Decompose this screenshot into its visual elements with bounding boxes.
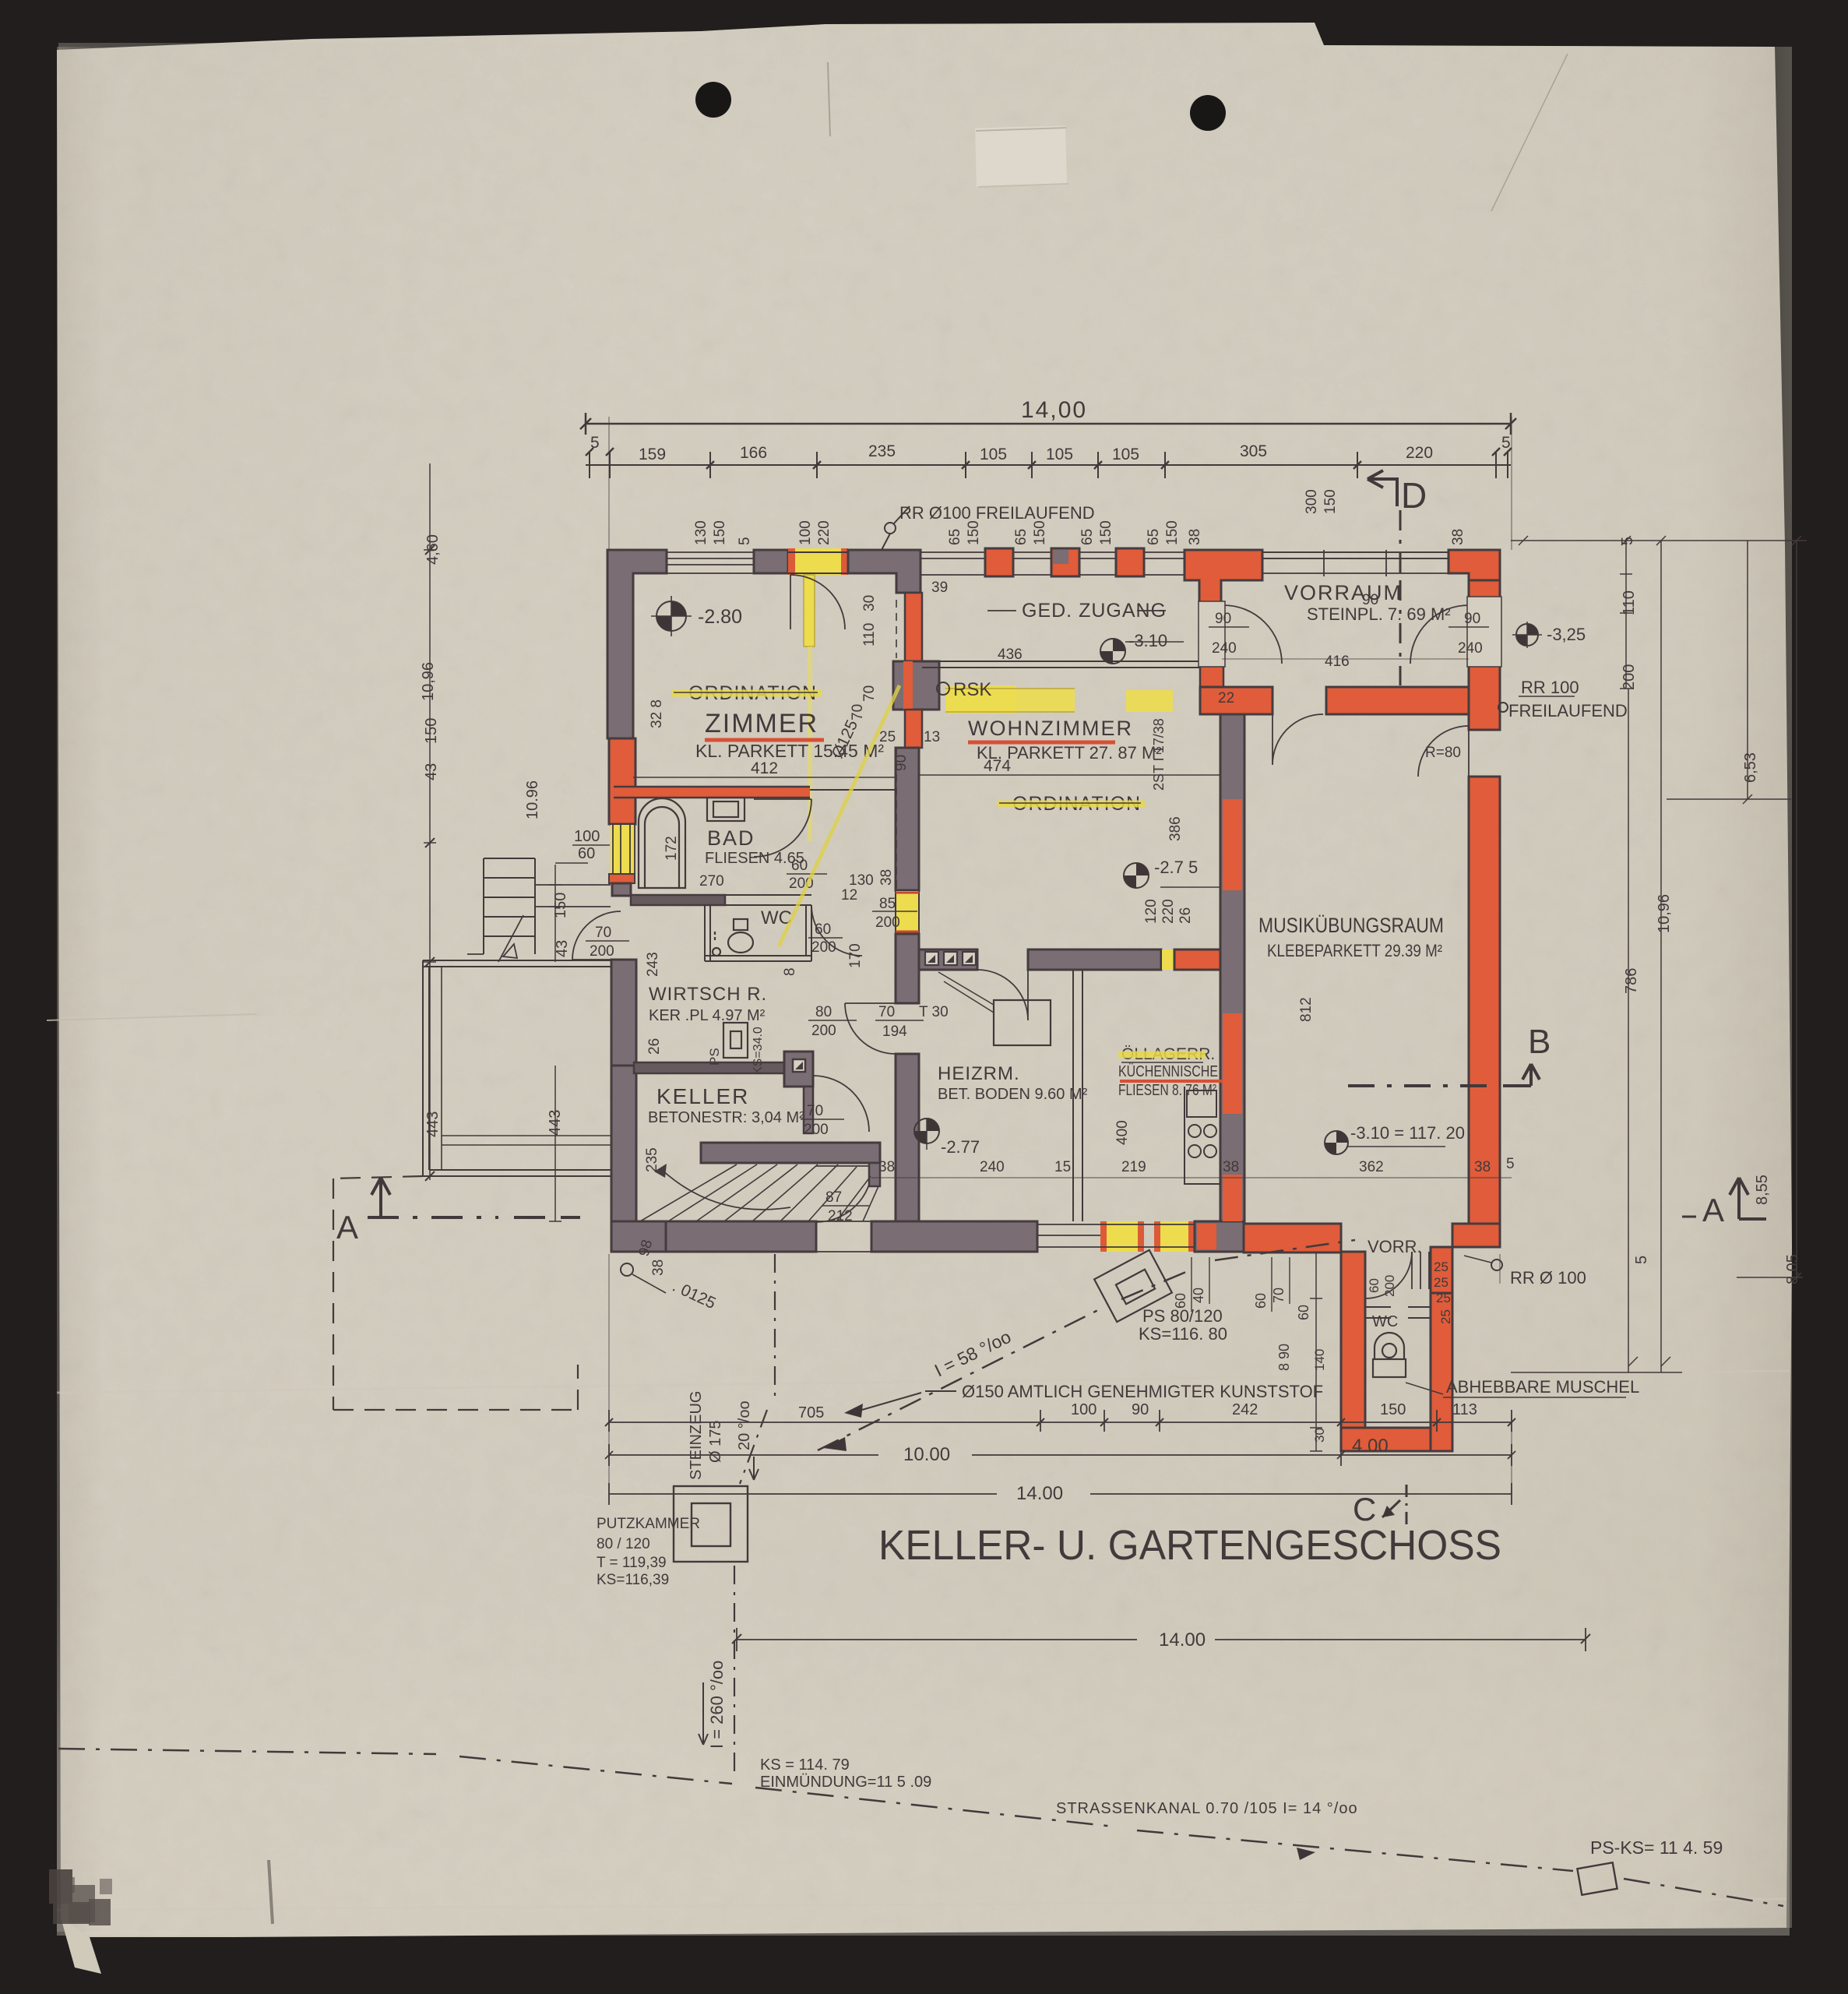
svg-text:2ST I 17/38: 2ST I 17/38 [1151,718,1167,791]
svg-text:70: 70 [850,704,866,720]
svg-text:RR 100: RR 100 [1521,678,1579,697]
svg-text:BET. BODEN 9.60 M²: BET. BODEN 9.60 M² [938,1086,1088,1103]
svg-text:12: 12 [841,887,857,904]
svg-text:32 8: 32 8 [649,699,665,728]
svg-text:100: 100 [574,828,600,845]
svg-text:90: 90 [1132,1401,1149,1418]
svg-text:166: 166 [740,444,767,462]
svg-text:KS=116,39: KS=116,39 [597,1572,669,1588]
svg-text:90: 90 [893,755,910,771]
svg-text:5: 5 [1633,1256,1650,1264]
svg-text:PS: PS [707,1048,722,1066]
svg-text:38: 38 [878,1159,895,1175]
svg-text:Ø150 AMTLICH GENEHMIGTER KUNST: Ø150 AMTLICH GENEHMIGTER KUNSTSTOF [962,1382,1323,1401]
svg-text:60: 60 [1367,1278,1382,1293]
svg-text:200: 200 [590,943,614,960]
svg-text:30: 30 [1312,1428,1327,1443]
svg-text:200: 200 [804,1122,829,1138]
svg-text:172: 172 [664,836,680,861]
svg-text:220: 220 [816,520,832,545]
svg-text:25: 25 [1434,1259,1448,1274]
svg-text:BETONESTR: 3,04 M²: BETONESTR: 3,04 M² [648,1109,804,1126]
svg-text:386: 386 [1167,816,1184,841]
svg-text:KÜCHENNISCHE: KÜCHENNISCHE [1118,1063,1218,1080]
svg-text:240: 240 [980,1159,1005,1175]
svg-text:26: 26 [1177,907,1194,924]
svg-text:80 / 120: 80 / 120 [597,1536,650,1552]
svg-text:235: 235 [644,1147,660,1172]
svg-text:A: A [336,1209,358,1245]
svg-text:105: 105 [1112,446,1139,463]
svg-text:38: 38 [1187,529,1203,545]
svg-text:HEIZRM.: HEIZRM. [938,1063,1020,1084]
svg-text:150: 150 [1032,520,1048,545]
svg-text:110: 110 [1621,590,1638,615]
svg-text:-2.80: -2.80 [698,606,742,628]
svg-text:150: 150 [1098,520,1114,545]
svg-text:PUTZKAMMER: PUTZKAMMER [597,1516,700,1532]
svg-text:170: 170 [847,943,864,968]
svg-text:240: 240 [1458,640,1483,657]
svg-text:T = 119,39: T = 119,39 [597,1555,667,1571]
svg-text:-3,25: -3,25 [1547,625,1586,644]
svg-text:70: 70 [861,685,878,702]
svg-text:200: 200 [811,1023,836,1039]
svg-text:14.00: 14.00 [1016,1483,1063,1504]
svg-text:R=80: R=80 [1425,745,1461,761]
svg-text:812: 812 [1298,997,1315,1022]
svg-text:STRASSENKANAL 0.70 /105 I=: STRASSENKANAL 0.70 /105 I= 14 °/oo [1056,1800,1358,1817]
svg-text:100: 100 [797,520,814,545]
svg-text:70: 70 [1271,1288,1287,1303]
svg-text:KS=116. 80: KS=116. 80 [1139,1324,1227,1344]
svg-text:KS=34.0: KS=34.0 [752,1027,765,1075]
svg-text:KS = 114. 79: KS = 114. 79 [760,1756,850,1774]
svg-text:5: 5 [1506,1156,1515,1172]
svg-text:305: 305 [1240,442,1267,460]
svg-text:60: 60 [1253,1293,1269,1309]
svg-text:13: 13 [924,729,940,745]
svg-text:KLEBEPARKETT 29.39 M²: KLEBEPARKETT 29.39 M² [1267,941,1442,960]
svg-text:10.96: 10.96 [524,780,541,819]
svg-text:-2.7 5: -2.7 5 [1154,858,1198,877]
svg-text:130: 130 [693,520,709,545]
svg-text:VORR.: VORR. [1368,1237,1422,1256]
svg-text:65: 65 [1013,529,1030,545]
svg-text:705: 705 [798,1404,824,1422]
svg-text:38: 38 [1223,1159,1239,1175]
svg-text:WC: WC [1372,1313,1398,1330]
svg-text:A: A [1702,1192,1724,1228]
svg-text:140: 140 [1312,1349,1327,1371]
svg-text:-3.10: -3.10 [1128,631,1167,650]
svg-text:87: 87 [825,1189,842,1206]
svg-text:14,00: 14,00 [1021,397,1087,423]
svg-text:120: 120 [1143,899,1160,924]
svg-text:25: 25 [1438,1309,1453,1324]
svg-text:400: 400 [1114,1120,1131,1145]
svg-text:43: 43 [554,940,571,957]
svg-text:90: 90 [1215,611,1231,627]
svg-text:90: 90 [1464,611,1480,627]
svg-text:242: 242 [1232,1401,1258,1418]
svg-text:270: 270 [699,873,724,890]
svg-text:243: 243 [645,952,661,977]
svg-text:40: 40 [1191,1288,1206,1303]
svg-text:200: 200 [875,914,900,931]
svg-text:10,96: 10,96 [420,662,437,701]
svg-text:70: 70 [878,1004,895,1020]
svg-text:60: 60 [791,858,808,874]
svg-text:BAD: BAD [707,826,755,850]
svg-text:RSK: RSK [953,679,991,700]
svg-text:FREILAUFEND: FREILAUFEND [1508,701,1628,720]
svg-text:10.00: 10.00 [903,1444,950,1465]
svg-text:VORRAUM: VORRAUM [1284,581,1403,604]
svg-text:65: 65 [1146,529,1162,545]
svg-text:PS 80/120: PS 80/120 [1142,1306,1223,1326]
svg-text:25: 25 [879,729,896,745]
svg-text:RR Ø 100: RR Ø 100 [1510,1268,1586,1288]
svg-text:443: 443 [424,1111,442,1137]
svg-text:T 30: T 30 [919,1004,949,1020]
svg-text:5: 5 [1501,434,1511,452]
svg-text:ZIMMER: ZIMMER [705,709,818,738]
svg-text:25: 25 [1434,1275,1448,1290]
svg-text:60: 60 [578,845,595,862]
svg-text:105: 105 [980,446,1007,463]
svg-text:200: 200 [811,939,836,956]
svg-text:194: 194 [882,1023,907,1040]
svg-text:38: 38 [1450,529,1466,545]
svg-text:5: 5 [737,537,753,545]
svg-text:FLIESEN 4.65: FLIESEN 4.65 [705,850,804,867]
svg-text:39: 39 [931,580,948,596]
svg-text:4.00: 4.00 [1352,1436,1389,1457]
svg-text:100: 100 [1071,1401,1096,1418]
svg-text:KELLER: KELLER [656,1084,749,1108]
svg-text:70: 70 [595,925,611,941]
svg-text:43: 43 [423,763,440,780]
svg-text:105: 105 [1046,446,1073,463]
svg-text:150: 150 [1322,489,1339,514]
svg-text:70: 70 [807,1103,823,1119]
svg-text:I = 260 °/oo: I = 260 °/oo [707,1661,727,1749]
svg-text:8,55: 8,55 [1754,1175,1771,1205]
svg-text:150: 150 [966,520,982,545]
svg-text:60: 60 [1296,1305,1311,1320]
svg-text:8,05: 8,05 [1784,1254,1801,1284]
svg-text:STEINZEUG: STEINZEUG [688,1391,705,1480]
svg-text:5: 5 [590,434,600,452]
svg-text:22: 22 [1218,690,1234,706]
svg-text:WOHNZIMMER: WOHNZIMMER [968,717,1133,740]
svg-text:B: B [1528,1023,1551,1061]
svg-text:8 90: 8 90 [1276,1344,1292,1371]
svg-text:14.00: 14.00 [1159,1629,1206,1651]
svg-text:38: 38 [650,1259,667,1276]
svg-text:8: 8 [782,967,798,976]
svg-text:786: 786 [1623,968,1640,994]
svg-text:362: 362 [1359,1159,1384,1175]
svg-text:STEINPL. 7. 69 M²: STEINPL. 7. 69 M² [1307,604,1451,624]
svg-text:65: 65 [1079,529,1096,545]
svg-text:20 °/oo: 20 °/oo [736,1400,753,1450]
svg-text:FLIESEN 8. 76 M²: FLIESEN 8. 76 M² [1118,1082,1216,1099]
svg-text:KELLER- U. GARTENGESCHOSS: KELLER- U. GARTENGESCHOSS [878,1522,1501,1569]
svg-text:WIRTSCH R.: WIRTSCH R. [649,984,767,1005]
svg-text:110: 110 [861,623,878,646]
svg-text:436: 436 [998,646,1023,663]
svg-text:474: 474 [984,757,1011,775]
svg-text:EINMÜNDUNG=11 5 .09: EINMÜNDUNG=11 5 .09 [760,1774,931,1791]
svg-text:60: 60 [815,921,831,938]
svg-text:150: 150 [423,718,440,744]
svg-text:RR Ø100 FREILAUFEND: RR Ø100 FREILAUFEND [899,503,1095,523]
svg-text:150: 150 [1380,1401,1406,1418]
svg-text:38: 38 [878,869,895,886]
svg-text:300: 300 [1304,489,1320,514]
svg-text:220: 220 [1406,444,1433,462]
svg-text:10,96: 10,96 [1656,894,1673,933]
svg-text:212: 212 [828,1208,853,1224]
svg-text:80: 80 [815,1004,832,1020]
svg-text:219: 219 [1121,1159,1146,1175]
svg-text:ABHEBBARE MUSCHEL: ABHEBBARE MUSCHEL [1446,1377,1639,1397]
svg-text:Ø 175: Ø 175 [707,1421,724,1463]
svg-text:240: 240 [1212,640,1237,657]
svg-text:38: 38 [1474,1159,1491,1175]
svg-text:15: 15 [1054,1159,1071,1175]
svg-text:150: 150 [1164,520,1181,545]
svg-text:90: 90 [1362,592,1378,608]
svg-text:150: 150 [712,520,728,545]
svg-text:-3.10 = 117. 20: -3.10 = 117. 20 [1350,1123,1465,1143]
svg-text:-2.77: -2.77 [941,1137,980,1157]
svg-text:235: 235 [868,442,896,460]
svg-text:PS-KS= 11 4. 59: PS-KS= 11 4. 59 [1590,1837,1723,1858]
svg-text:130: 130 [849,872,874,889]
svg-text:26: 26 [646,1038,663,1055]
svg-text:113: 113 [1452,1401,1477,1418]
svg-text:D: D [1401,475,1427,516]
svg-text:MUSIKÜBUNGSRAUM: MUSIKÜBUNGSRAUM [1258,914,1444,937]
svg-text:85: 85 [879,896,896,912]
svg-text:416: 416 [1325,654,1350,670]
svg-text:65: 65 [947,529,963,545]
svg-text:159: 159 [639,446,666,463]
svg-text:200: 200 [1621,664,1638,690]
svg-text:200: 200 [1382,1275,1397,1297]
svg-text:30: 30 [861,595,878,611]
svg-text:KER .PL 4.97 M²: KER .PL 4.97 M² [649,1007,766,1024]
svg-text:220: 220 [1160,899,1177,924]
svg-text:6,53: 6,53 [1742,752,1759,783]
svg-text:25: 25 [1436,1291,1451,1305]
svg-text:412: 412 [751,759,778,777]
svg-text:KL. PARKETT 15.45 M²: KL. PARKETT 15.45 M² [695,741,884,761]
